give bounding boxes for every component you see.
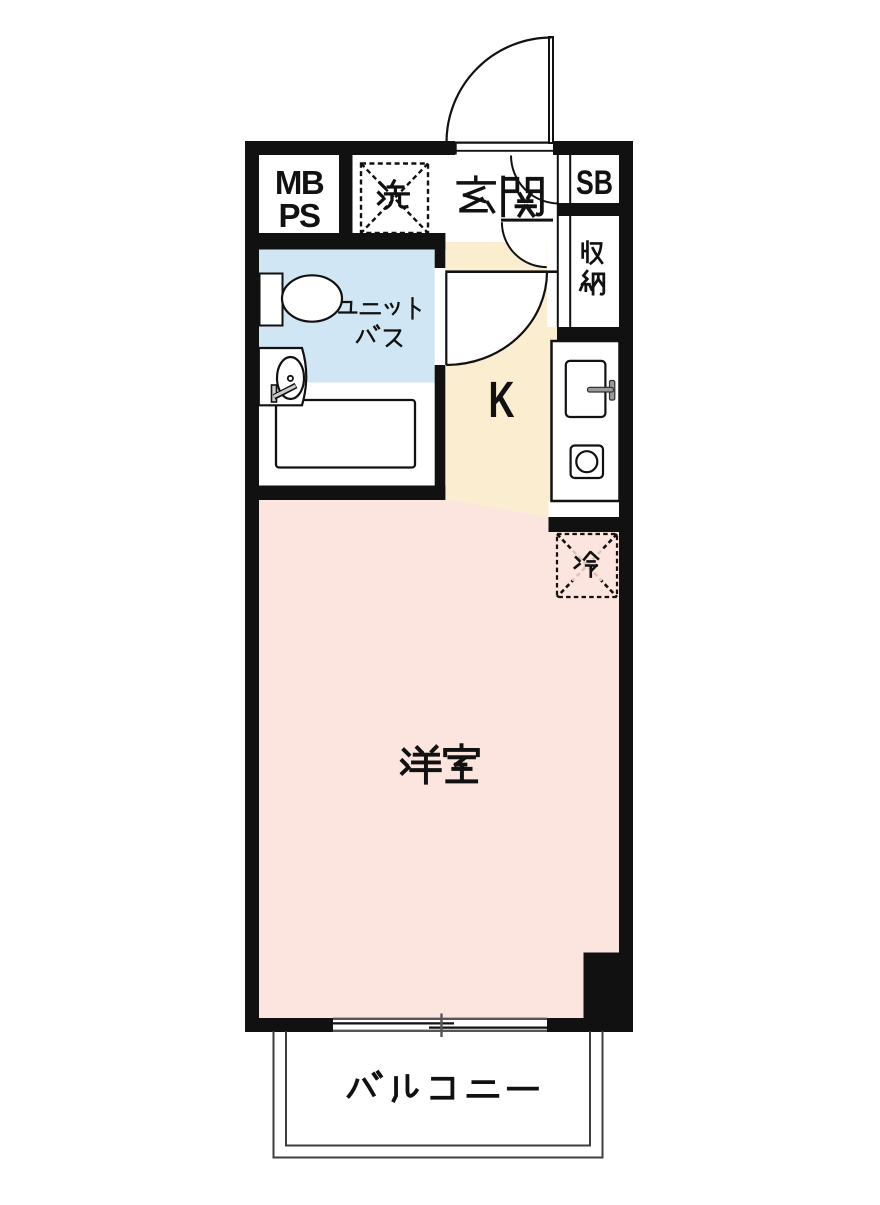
svg-text:K: K — [489, 371, 515, 428]
svg-text:MB: MB — [275, 164, 324, 201]
svg-text:PS: PS — [278, 197, 320, 234]
svg-text:SB: SB — [576, 164, 613, 202]
